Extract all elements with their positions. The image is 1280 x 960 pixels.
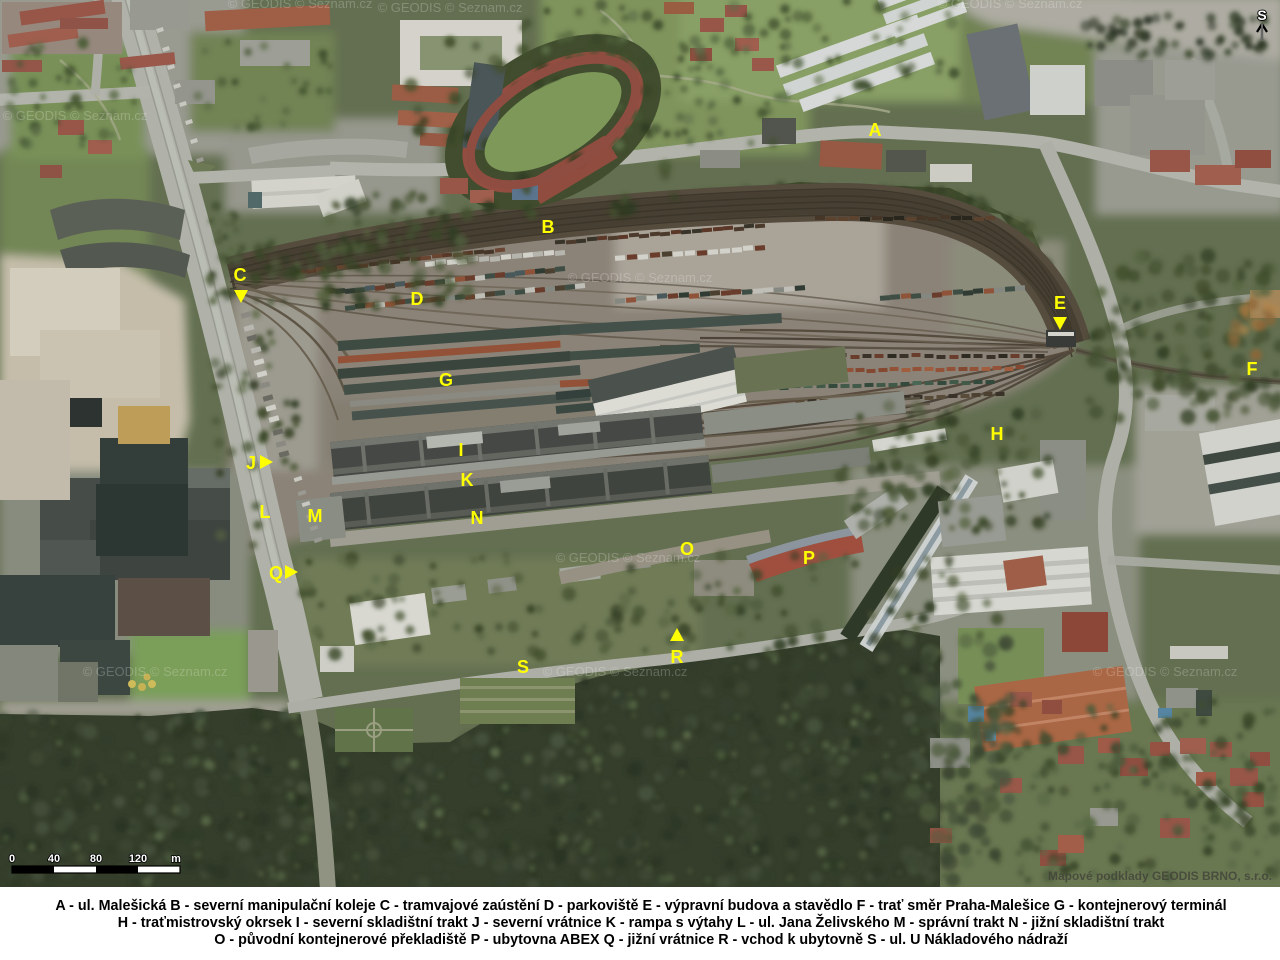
- svg-text:N: N: [471, 508, 484, 528]
- svg-text:© GEODIS © Seznam.cz: © GEODIS © Seznam.cz: [938, 0, 1083, 11]
- svg-text:© GEODIS © Seznam.cz: © GEODIS © Seznam.cz: [556, 550, 701, 565]
- svg-text:120: 120: [129, 853, 147, 865]
- svg-text:A: A: [869, 120, 882, 140]
- svg-text:H - traťmistrovský okrsek I -: H - traťmistrovský okrsek I - severní sk…: [118, 913, 1165, 931]
- svg-text:C: C: [234, 265, 247, 285]
- svg-text:R: R: [671, 647, 684, 667]
- svg-text:S: S: [1257, 7, 1266, 23]
- svg-text:G: G: [439, 370, 453, 390]
- svg-text:M: M: [308, 506, 323, 526]
- svg-text:m: m: [171, 853, 181, 865]
- svg-text:© GEODIS © Seznam.cz: © GEODIS © Seznam.cz: [1093, 664, 1238, 679]
- svg-text:B: B: [542, 217, 555, 237]
- svg-text:J: J: [246, 453, 256, 473]
- svg-text:I: I: [458, 440, 463, 460]
- svg-text:80: 80: [90, 853, 102, 865]
- svg-text:Mapové podklady GEODIS BRNO, s: Mapové podklady GEODIS BRNO, s.r.o.: [1048, 869, 1272, 883]
- svg-text:O - původní kontejnerové překl: O - původní kontejnerové překladiště P -…: [214, 932, 1069, 948]
- svg-text:© GEODIS © Seznam.cz: © GEODIS © Seznam.cz: [543, 664, 688, 679]
- svg-text:K: K: [461, 470, 474, 490]
- svg-text:A - ul. Malešická B - severní: A - ul. Malešická B - severní manipulačn…: [55, 898, 1226, 914]
- svg-text:D: D: [411, 289, 424, 309]
- svg-text:0: 0: [9, 853, 15, 865]
- svg-text:H: H: [991, 424, 1004, 444]
- svg-text:© GEODIS © Seznam.cz: © GEODIS © Seznam.cz: [83, 664, 228, 679]
- svg-text:L: L: [260, 502, 271, 522]
- svg-text:© GEODIS © Seznam.cz: © GEODIS © Seznam.cz: [378, 0, 523, 15]
- svg-text:© GEODIS © Seznam.cz: © GEODIS © Seznam.cz: [3, 108, 148, 123]
- svg-text:© GEODIS © Seznam.cz: © GEODIS © Seznam.cz: [228, 0, 373, 11]
- svg-text:F: F: [1247, 359, 1258, 379]
- svg-text:P: P: [803, 548, 815, 568]
- svg-text:S: S: [517, 657, 529, 677]
- svg-text:O: O: [680, 539, 694, 559]
- svg-text:E: E: [1054, 293, 1066, 313]
- svg-text:© GEODIS © Seznam.cz: © GEODIS © Seznam.cz: [568, 270, 713, 285]
- svg-text:40: 40: [48, 853, 60, 865]
- svg-text:Q: Q: [269, 563, 283, 583]
